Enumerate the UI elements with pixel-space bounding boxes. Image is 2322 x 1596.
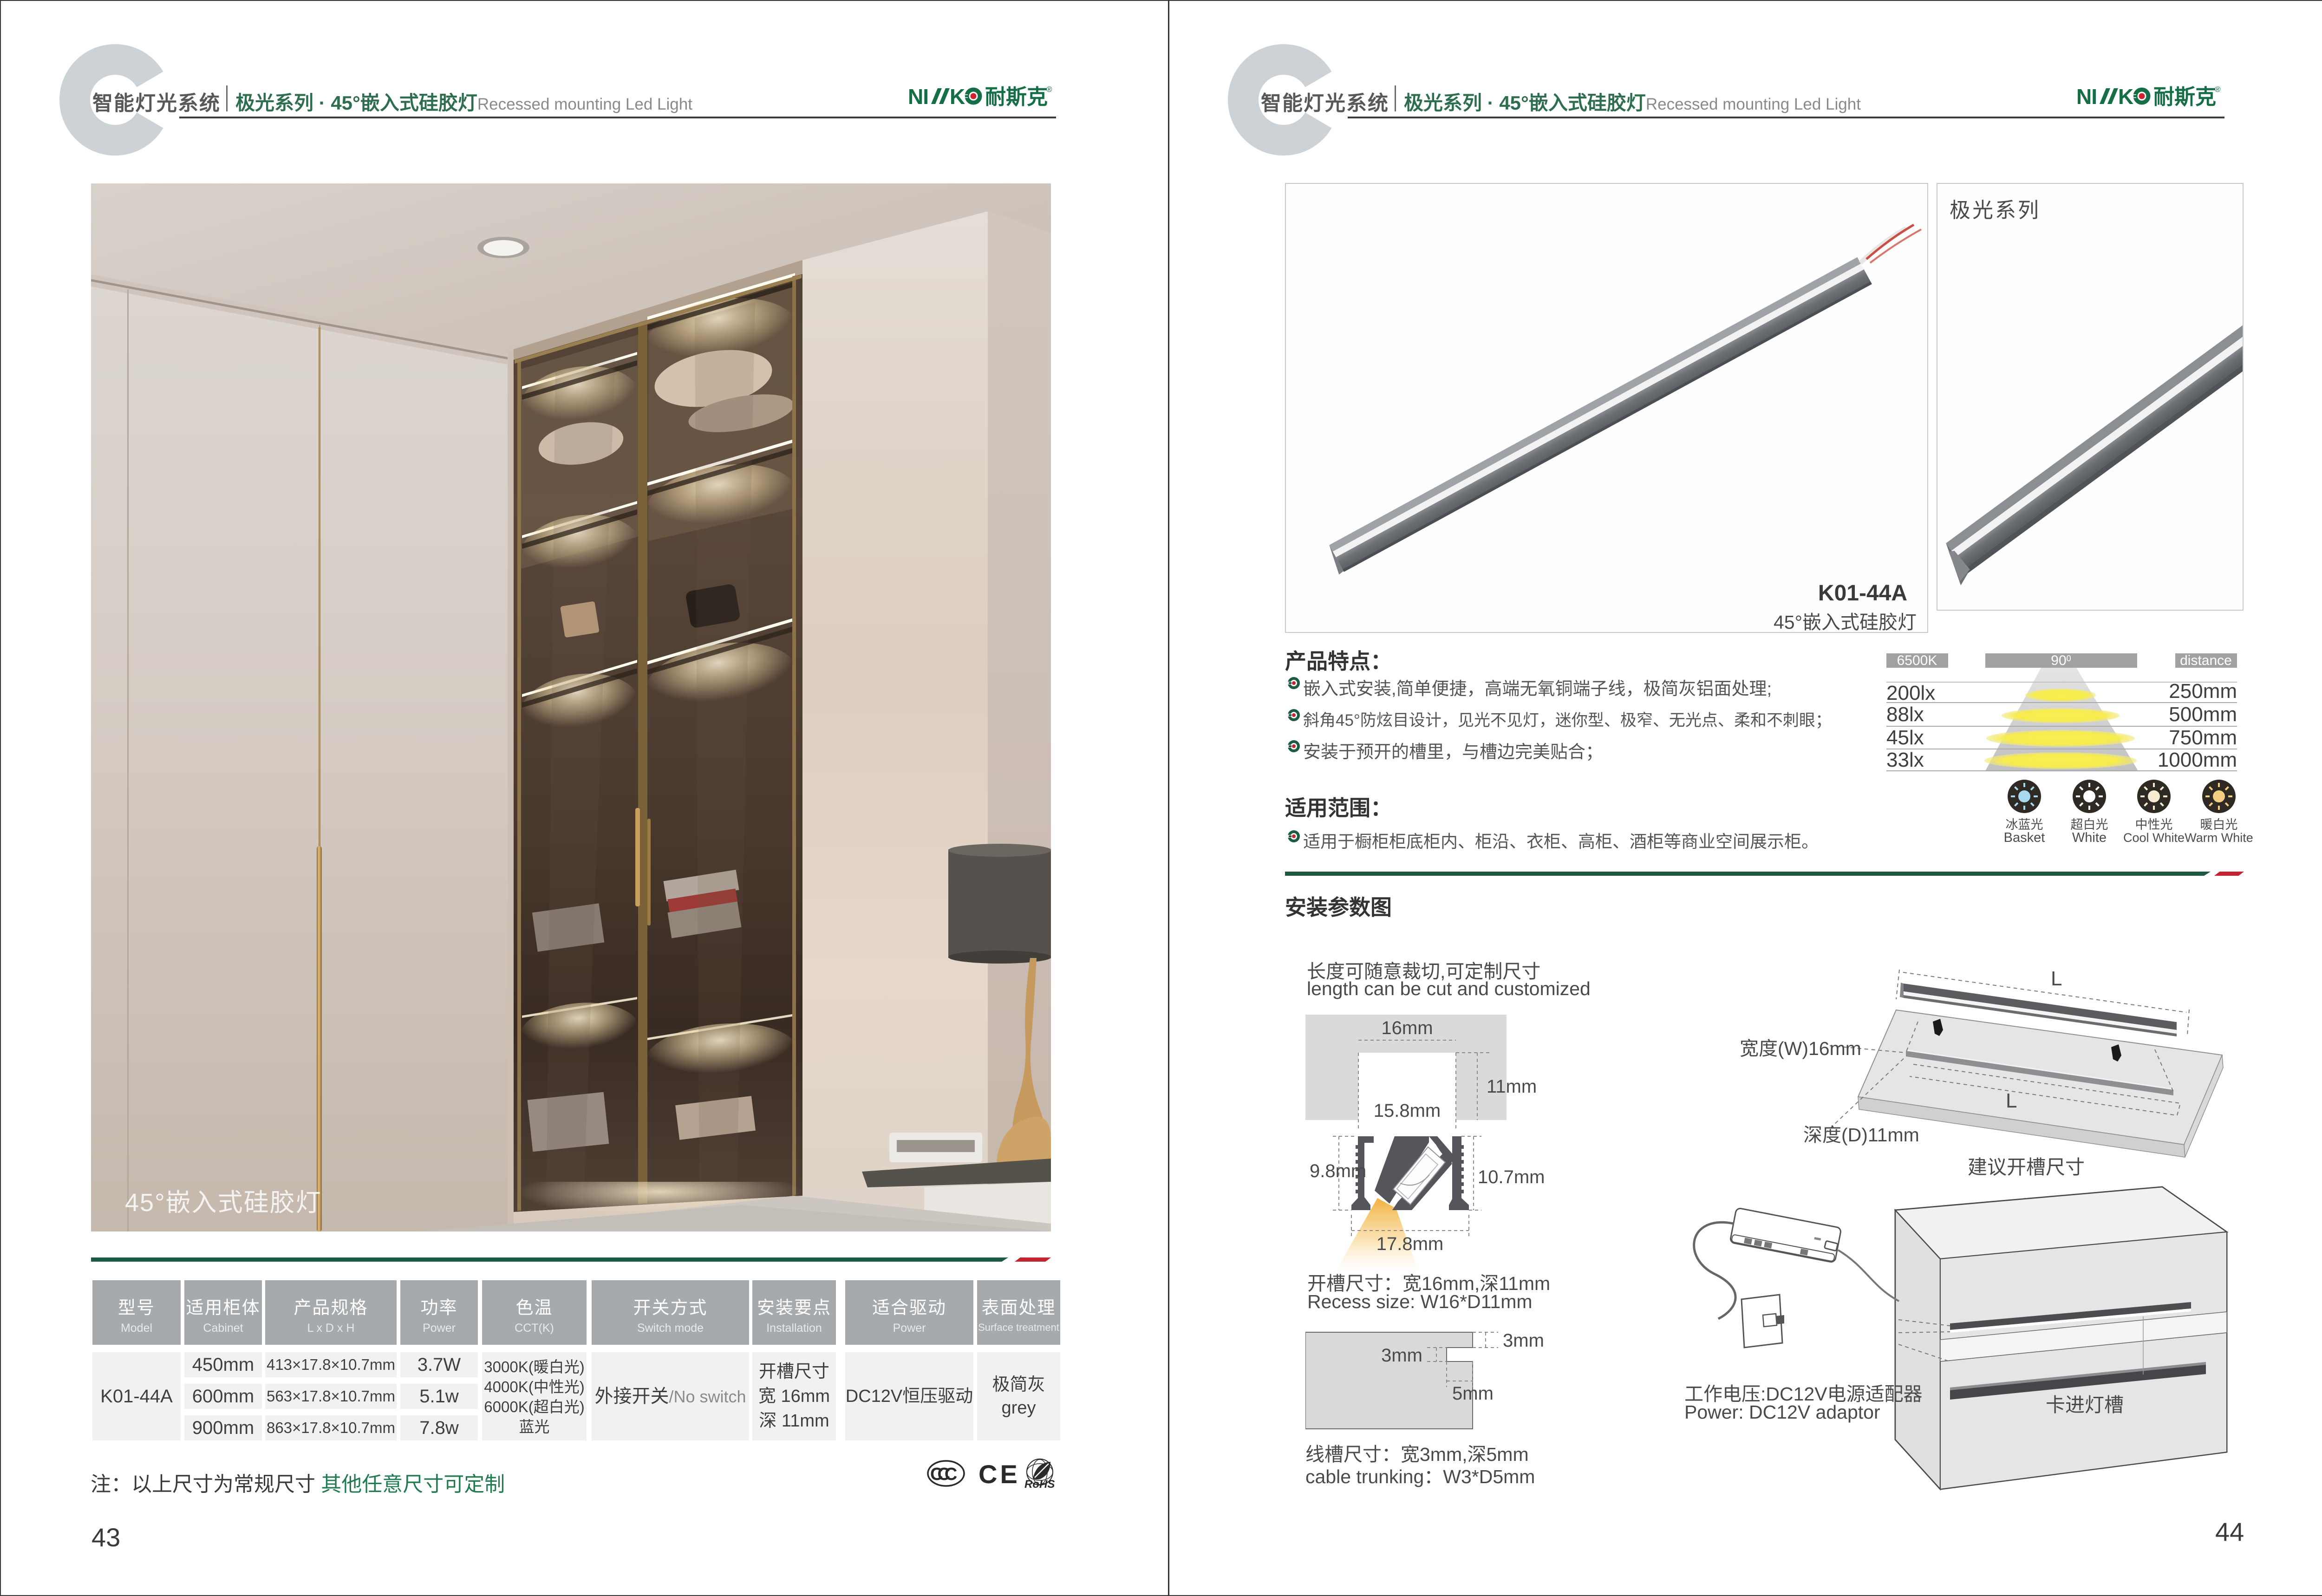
svg-text:宽度(W)16mm: 宽度(W)16mm — [1740, 1038, 1861, 1059]
svg-text:5mm: 5mm — [1452, 1383, 1494, 1404]
svg-text:9.8mm: 9.8mm — [1310, 1161, 1366, 1181]
svg-text:15.8mm: 15.8mm — [1374, 1101, 1441, 1121]
svg-text:中性光: 中性光 — [2135, 818, 2173, 832]
svg-text:Warm White: Warm White — [2185, 831, 2253, 844]
svg-text:16mm: 16mm — [1381, 1018, 1433, 1038]
svg-text:K01-44A: K01-44A — [1818, 581, 1907, 606]
svg-text:建议开槽尺寸: 建议开槽尺寸 — [1968, 1156, 2085, 1178]
svg-text:750mm: 750mm — [2169, 726, 2237, 749]
svg-text:1000mm: 1000mm — [2158, 749, 2237, 771]
svg-text:45°嵌入式硅胶灯: 45°嵌入式硅胶灯 — [125, 1189, 322, 1217]
svg-text:250mm: 250mm — [2169, 680, 2237, 703]
svg-text:L: L — [2006, 1089, 2017, 1112]
svg-text:11mm: 11mm — [1487, 1076, 1537, 1097]
svg-text:33lx: 33lx — [1886, 749, 1924, 771]
svg-text:White: White — [2072, 830, 2107, 844]
svg-text:200lx: 200lx — [1886, 682, 1935, 704]
svg-text:卡进灯槽: 卡进灯槽 — [2046, 1394, 2124, 1416]
svg-text:distance: distance — [2180, 653, 2232, 668]
svg-text:CCC: CCC — [930, 1465, 957, 1484]
svg-text:3mm: 3mm — [1381, 1345, 1422, 1366]
svg-text:Basket: Basket — [2004, 830, 2045, 844]
svg-text:3mm: 3mm — [1503, 1330, 1544, 1351]
svg-text:45lx: 45lx — [1886, 726, 1924, 749]
svg-text:10.7mm: 10.7mm — [1478, 1167, 1545, 1187]
svg-text:冰蓝光: 冰蓝光 — [2006, 818, 2043, 832]
svg-text:500mm: 500mm — [2169, 703, 2237, 726]
svg-text:极光系列: 极光系列 — [1950, 198, 2041, 222]
svg-text:RoHS: RoHS — [1024, 1478, 1055, 1491]
svg-text:45°嵌入式硅胶灯: 45°嵌入式硅胶灯 — [1774, 612, 1917, 632]
svg-text:6500K: 6500K — [1897, 653, 1937, 668]
svg-text:88lx: 88lx — [1886, 703, 1924, 726]
svg-text:深度(D)11mm: 深度(D)11mm — [1803, 1124, 1919, 1146]
svg-text:Cool White: Cool White — [2123, 831, 2185, 844]
svg-text:L: L — [2051, 967, 2062, 990]
svg-text:暖白光: 暖白光 — [2200, 818, 2238, 832]
svg-text:超白光: 超白光 — [2071, 818, 2108, 832]
svg-text:17.8mm: 17.8mm — [1376, 1234, 1444, 1254]
